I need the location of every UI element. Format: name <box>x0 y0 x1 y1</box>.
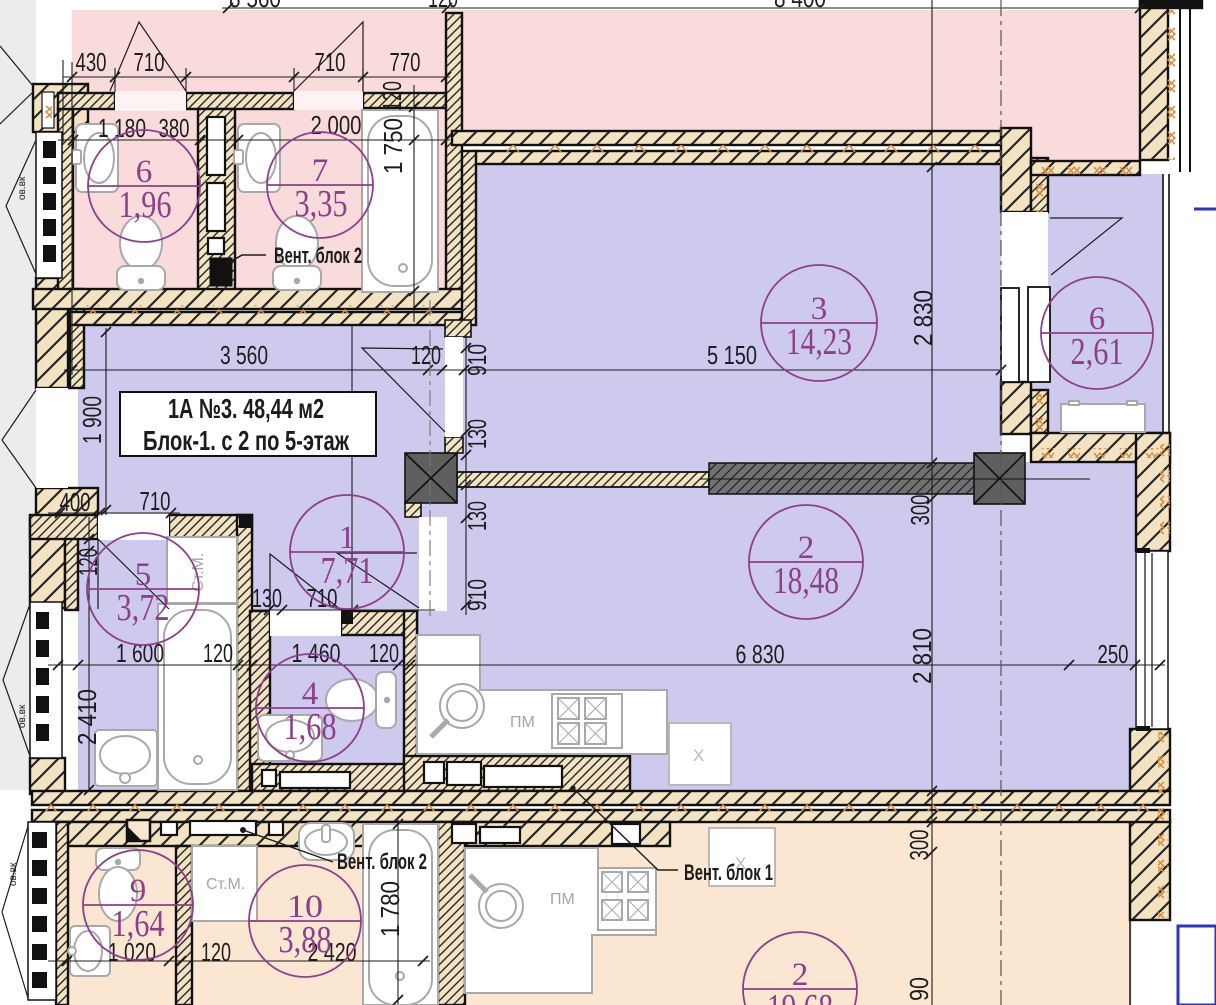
svg-text:1 780: 1 780 <box>375 881 405 937</box>
svg-text:1,96: 1,96 <box>119 184 172 226</box>
svg-text:8 400: 8 400 <box>774 0 826 13</box>
svg-text:1 180: 1 180 <box>98 113 146 143</box>
svg-text:1 750: 1 750 <box>378 118 408 174</box>
svg-text:130: 130 <box>462 501 492 531</box>
svg-text:3 560: 3 560 <box>220 340 268 370</box>
svg-text:3,88: 3,88 <box>279 919 332 961</box>
svg-text:250: 250 <box>1098 639 1129 669</box>
svg-text:1 900: 1 900 <box>77 396 107 444</box>
svg-text:ов.вк: ов.вк <box>17 704 28 728</box>
svg-text:Блок-1. с 2 по 5-этаж: Блок-1. с 2 по 5-этаж <box>143 425 350 456</box>
svg-text:6 830: 6 830 <box>736 639 785 669</box>
svg-text:18,48: 18,48 <box>773 560 839 602</box>
svg-text:120: 120 <box>411 340 441 370</box>
svg-text:ов.вк: ов.вк <box>17 176 28 200</box>
svg-text:7,71: 7,71 <box>321 550 374 592</box>
svg-text:Вент. блок 2: Вент. блок 2 <box>274 243 362 268</box>
svg-text:1,68: 1,68 <box>284 706 337 748</box>
svg-text:Вент. блок 1: Вент. блок 1 <box>684 860 773 885</box>
svg-text:ПМ: ПМ <box>550 891 575 908</box>
svg-text:2,61: 2,61 <box>1071 331 1124 373</box>
svg-text:3,72: 3,72 <box>117 587 170 629</box>
svg-text:120: 120 <box>201 937 231 967</box>
svg-text:400: 400 <box>60 487 91 517</box>
svg-text:Ст.М.: Ст.М. <box>206 876 245 893</box>
svg-text:ПМ: ПМ <box>510 714 535 731</box>
svg-text:910: 910 <box>462 579 492 611</box>
svg-text:8 560: 8 560 <box>229 0 281 13</box>
svg-text:X: X <box>735 854 746 873</box>
svg-text:5 150: 5 150 <box>707 340 757 370</box>
svg-text:120: 120 <box>377 81 407 111</box>
svg-text:120: 120 <box>203 638 233 668</box>
svg-text:770: 770 <box>390 47 421 77</box>
svg-text:2 810: 2 810 <box>907 628 937 684</box>
svg-text:90: 90 <box>904 977 934 1001</box>
svg-text:300: 300 <box>905 495 935 526</box>
svg-text:710: 710 <box>315 47 346 77</box>
svg-text:130: 130 <box>252 583 282 613</box>
svg-text:1,64: 1,64 <box>112 903 165 945</box>
svg-text:1А №3. 48,44 м2: 1А №3. 48,44 м2 <box>168 393 324 424</box>
svg-text:430: 430 <box>76 47 107 77</box>
svg-text:130: 130 <box>462 419 492 449</box>
svg-text:2 830: 2 830 <box>908 290 938 346</box>
svg-text:910: 910 <box>462 344 492 376</box>
svg-text:19,68: 19,68 <box>767 987 833 1005</box>
svg-text:ов.вк: ов.вк <box>8 862 19 886</box>
svg-text:1 460: 1 460 <box>292 638 341 668</box>
svg-text:710: 710 <box>140 486 171 516</box>
svg-text:710: 710 <box>134 47 165 77</box>
svg-text:120: 120 <box>369 638 399 668</box>
svg-text:120: 120 <box>428 0 458 13</box>
svg-text:3,35: 3,35 <box>295 183 348 225</box>
svg-text:X: X <box>693 746 704 765</box>
svg-text:14,23: 14,23 <box>786 321 852 363</box>
svg-text:2 410: 2 410 <box>72 689 102 745</box>
svg-text:Вент. блок 2: Вент. блок 2 <box>337 849 427 874</box>
svg-text:300: 300 <box>904 830 934 861</box>
svg-text:2 000: 2 000 <box>311 110 362 140</box>
